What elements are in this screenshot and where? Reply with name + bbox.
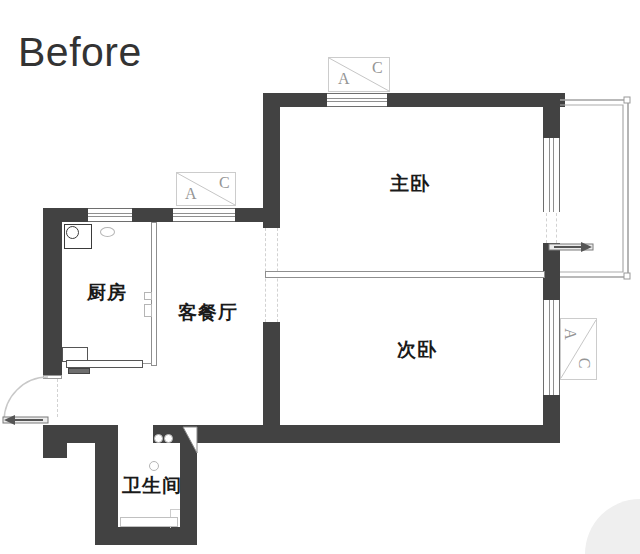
railing-corner	[624, 273, 630, 279]
room-label-bathroom: 卫生间	[122, 476, 182, 496]
floorplan-canvas: Before A C A C A C	[0, 0, 640, 554]
page-title: Before	[18, 29, 142, 76]
room-label-second-bedroom: 次卧	[397, 340, 437, 360]
ac-diagonal	[329, 58, 389, 91]
entry-door-swing-icon	[4, 377, 48, 421]
room-label-living-dining: 客餐厅	[178, 303, 238, 323]
ac-diagonal	[177, 173, 235, 205]
room-label-master-bedroom: 主卧	[390, 174, 430, 194]
railing-corner	[624, 97, 630, 103]
ac-diagonal	[561, 320, 596, 378]
room-label-kitchen: 厨房	[87, 283, 127, 303]
plan-linework	[0, 0, 640, 554]
bathroom-door-leaf	[183, 427, 197, 453]
